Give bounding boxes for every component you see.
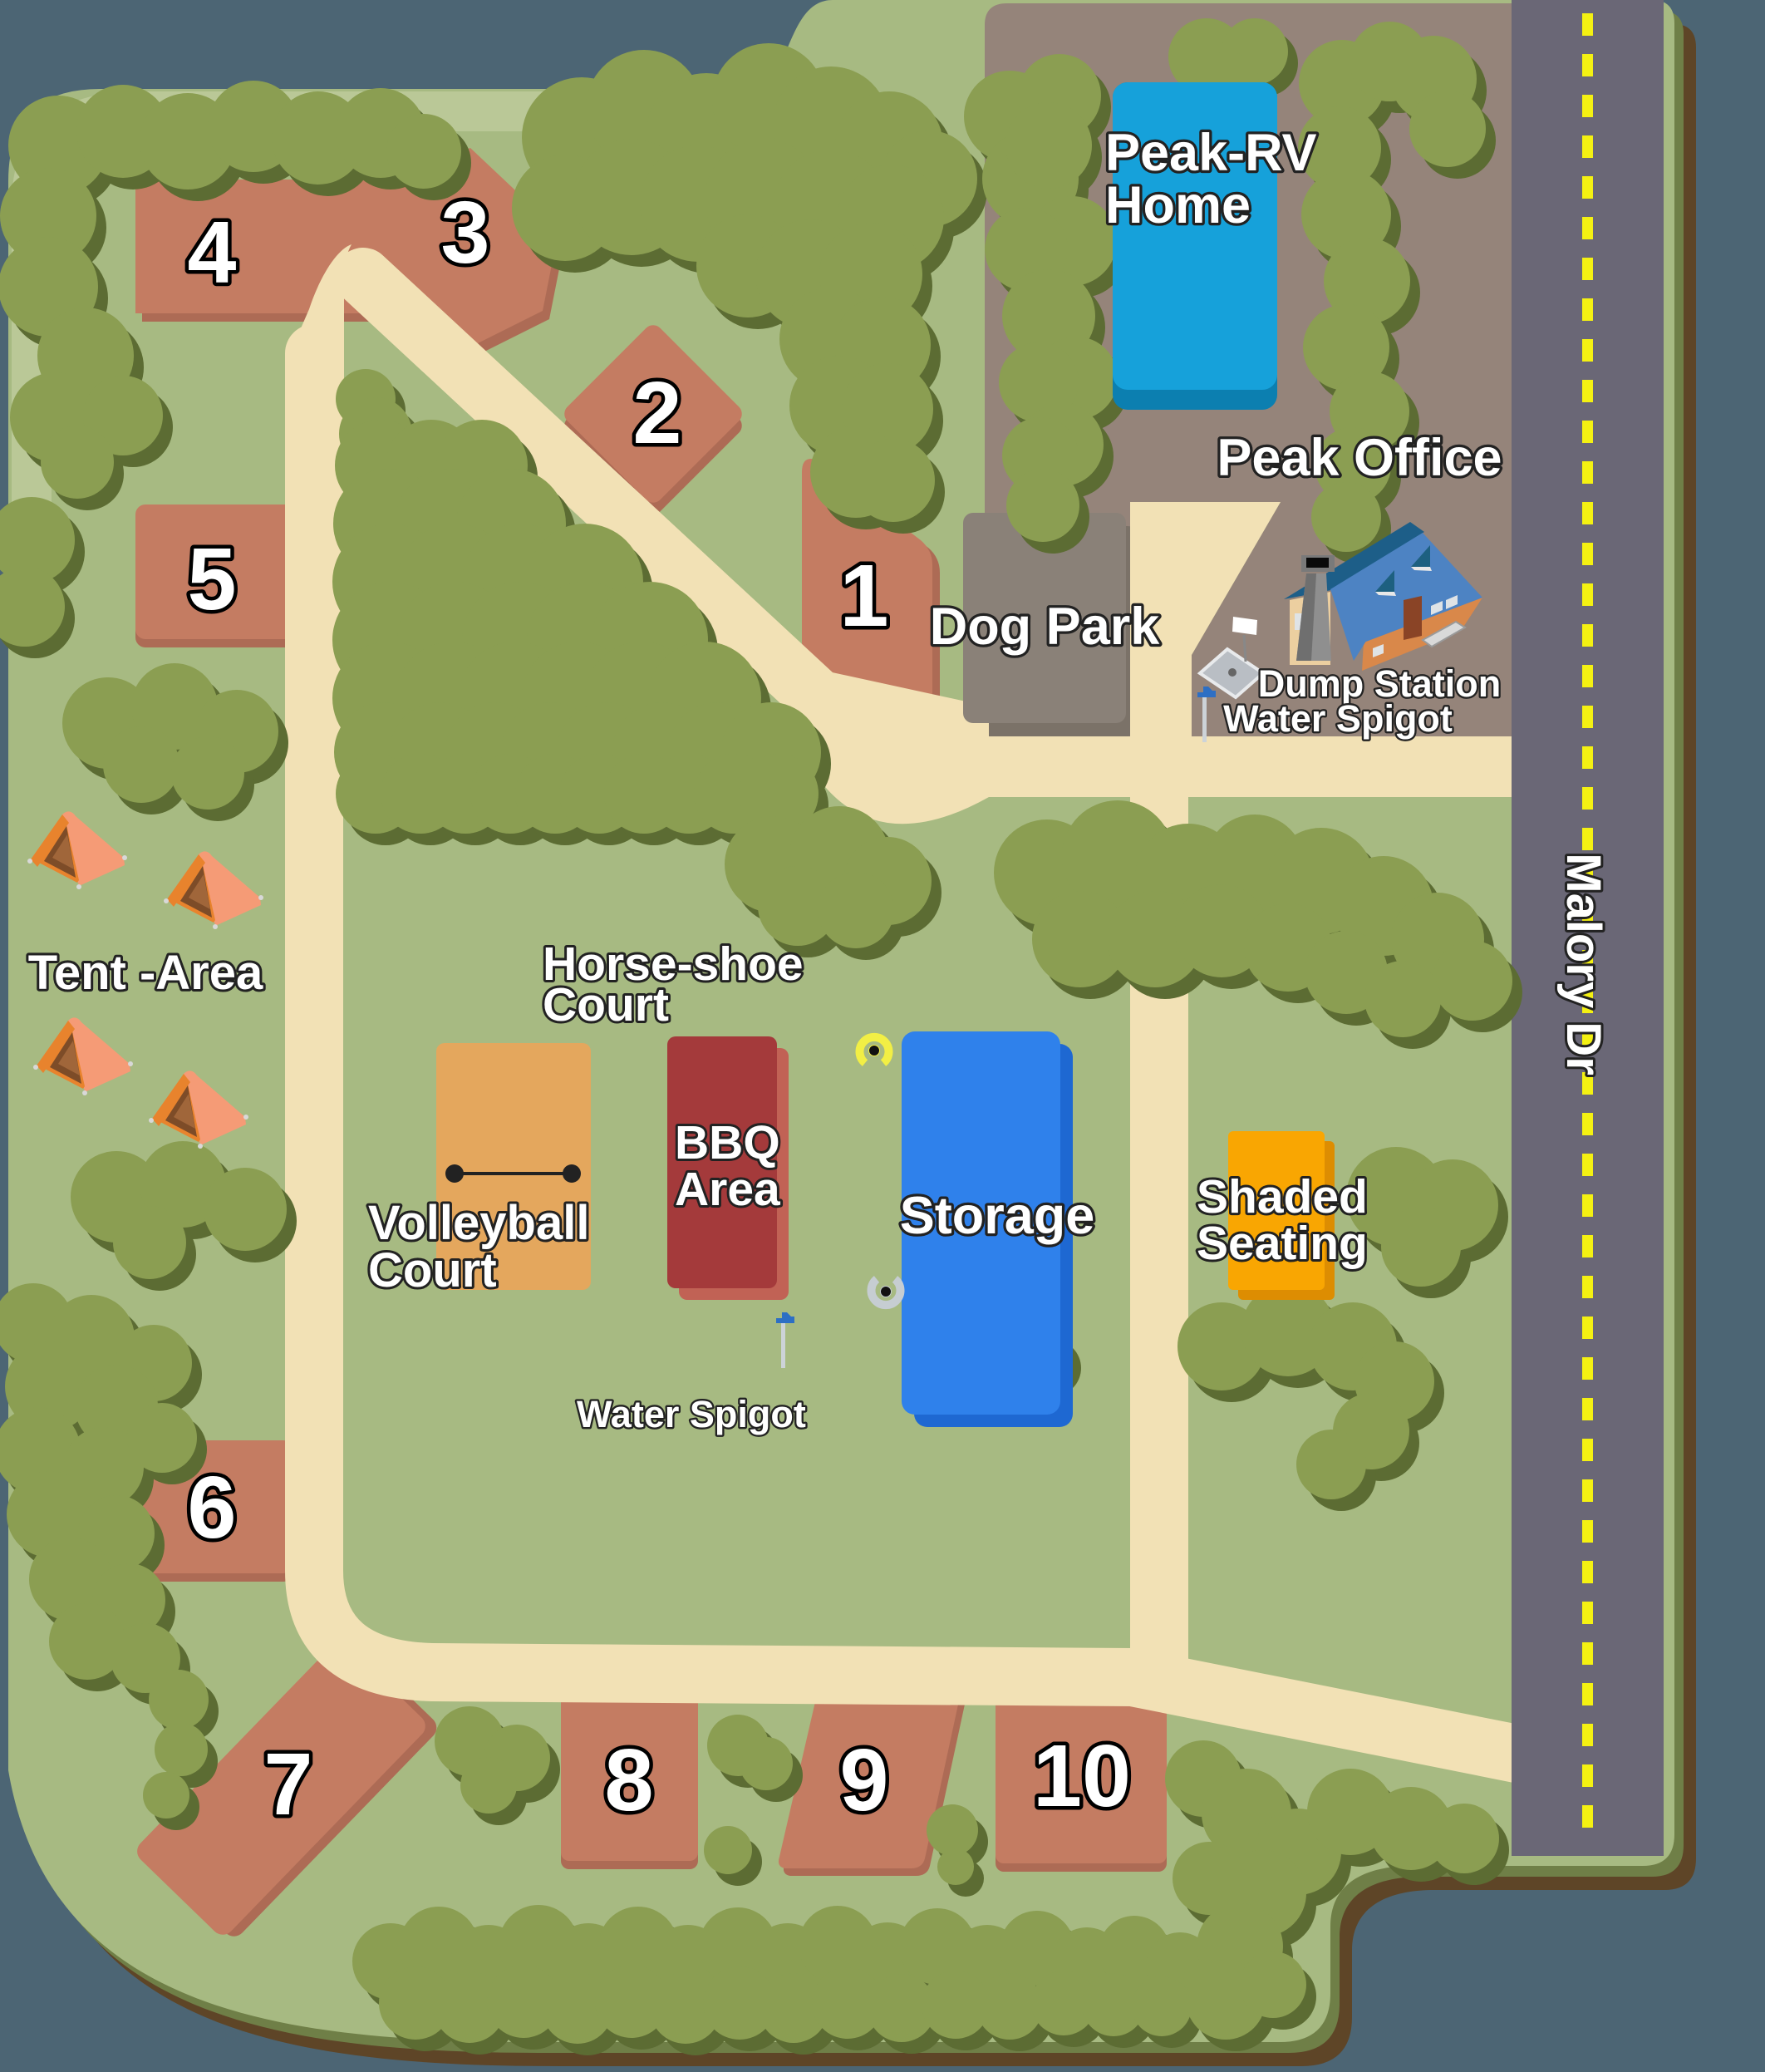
svg-text:Seating: Seating: [1197, 1217, 1368, 1270]
svg-text:Volleyball: Volleyball: [368, 1196, 589, 1250]
svg-text:2: 2: [633, 364, 682, 462]
svg-text:Court: Court: [543, 978, 669, 1031]
svg-text:Dog Park: Dog Park: [930, 598, 1161, 656]
svg-text:7: 7: [264, 1735, 313, 1833]
svg-text:Peak Office: Peak Office: [1217, 429, 1502, 487]
svg-text:8: 8: [605, 1731, 654, 1829]
svg-text:Water Spigot: Water Spigot: [577, 1393, 806, 1435]
svg-text:5: 5: [188, 530, 237, 628]
svg-text:Shaded: Shaded: [1197, 1170, 1368, 1223]
svg-text:Court: Court: [368, 1243, 497, 1297]
svg-text:BBQ: BBQ: [675, 1116, 780, 1169]
svg-text:6: 6: [188, 1459, 237, 1557]
svg-text:9: 9: [840, 1731, 889, 1829]
svg-text:Water Spigot: Water Spigot: [1223, 697, 1453, 740]
svg-text:Peak-RV: Peak-RV: [1105, 124, 1317, 182]
svg-text:4: 4: [188, 204, 237, 302]
svg-text:1: 1: [840, 547, 889, 645]
svg-text:3: 3: [441, 184, 490, 282]
svg-text:Home: Home: [1105, 176, 1251, 234]
svg-text:Storage: Storage: [900, 1187, 1095, 1245]
svg-text:10: 10: [1033, 1727, 1131, 1825]
svg-text:Area: Area: [675, 1163, 781, 1216]
svg-text:Tent -Area: Tent -Area: [28, 946, 263, 1000]
svg-text:Malory Dr: Malory Dr: [1556, 853, 1610, 1075]
